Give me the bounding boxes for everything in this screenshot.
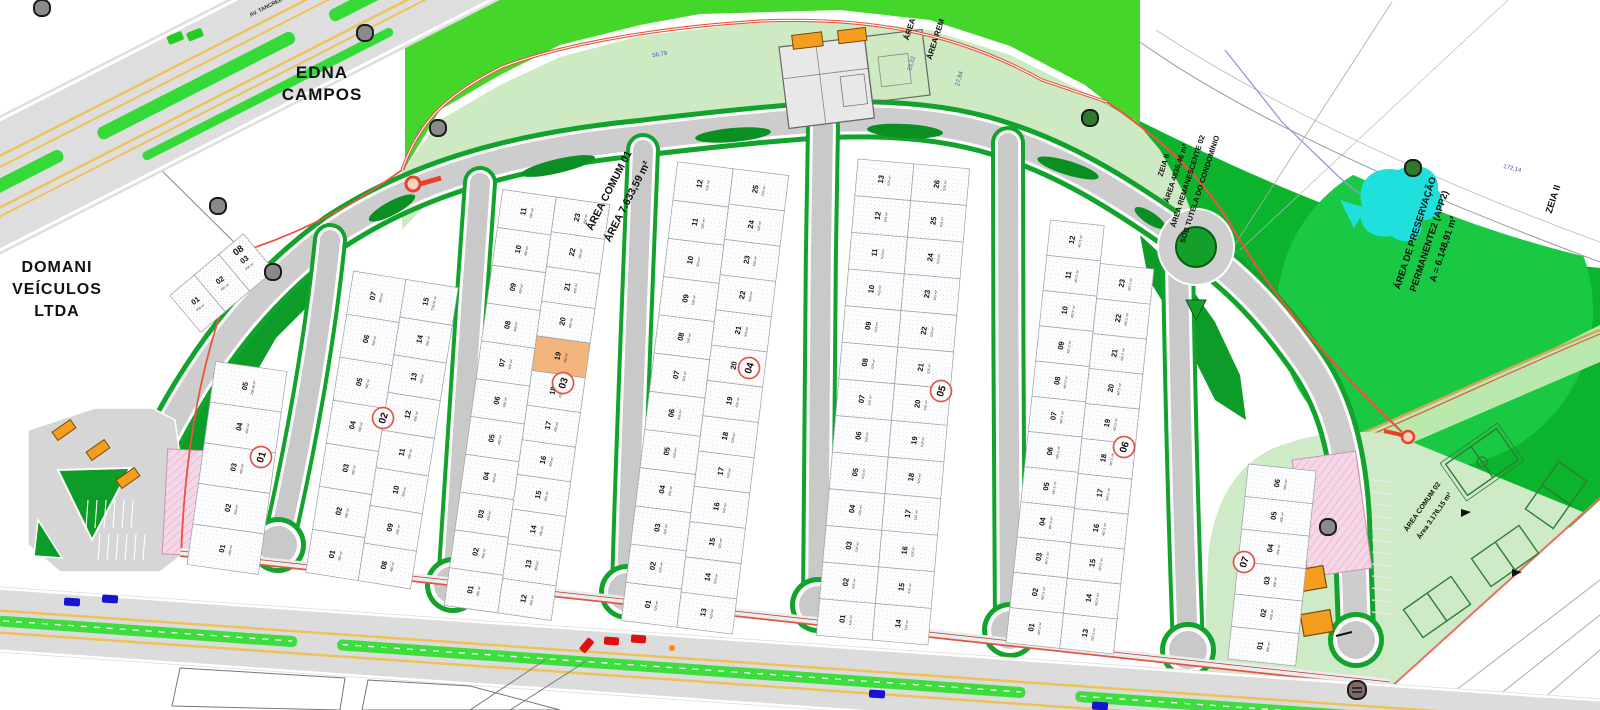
lot-number: 10 — [866, 284, 876, 294]
lot-05-14[interactable]: 14525 m² — [872, 603, 931, 645]
lot-04-23[interactable]: 23525 m² — [720, 239, 780, 281]
lot-number: 17 — [715, 466, 725, 476]
parcel-domani-line3: LTDA — [34, 303, 79, 320]
lot-number: 10 — [685, 255, 695, 265]
lot-02-02[interactable]: 02450 m² — [313, 486, 372, 537]
lot-number: 09 — [1056, 341, 1066, 351]
lot-number: 08 — [860, 358, 870, 368]
lot-number: 13 — [876, 174, 886, 184]
tree-icon — [1319, 518, 1337, 536]
lot-04-14[interactable]: 14525 m² — [681, 557, 741, 599]
lot-number: 07 — [671, 370, 681, 380]
lot-number: 26 — [932, 179, 942, 189]
lot-03-03[interactable]: 03450 m² — [455, 492, 514, 537]
lot-05-26[interactable]: 26525 m² — [911, 164, 970, 206]
lot-number: 01 — [1026, 622, 1036, 632]
tree-icon — [429, 119, 447, 137]
lot-number: 19 — [1102, 418, 1112, 428]
lot-number: 19 — [724, 396, 734, 406]
site-plan-page: AV. TANCREDO NEVES — [0, 0, 1600, 710]
lot-number: 13 — [698, 607, 708, 617]
block-label-03: 03 — [553, 373, 574, 394]
lot-number: 06 — [1045, 446, 1055, 456]
lot-number: 08 — [676, 332, 686, 342]
lot-05-16[interactable]: 16525 m² — [879, 530, 938, 572]
lot-number: 16 — [1091, 523, 1101, 533]
lot-06-08[interactable]: 08487,5 m² — [1032, 361, 1089, 402]
lot-03-01[interactable]: 01450 m² — [444, 568, 503, 613]
lot-03-02[interactable]: 02450 m² — [450, 530, 509, 575]
lot-06-14[interactable]: 14487,5 m² — [1063, 578, 1120, 619]
lot-02-15[interactable]: 15728,04 m² — [400, 279, 458, 325]
lot-05-03[interactable]: 03525 m² — [823, 525, 882, 567]
lot-02-01[interactable]: 01450 m² — [306, 529, 365, 580]
lot-06-10[interactable]: 10487,5 m² — [1039, 290, 1096, 331]
lot-number: 16 — [900, 546, 910, 556]
lot-number: 15 — [896, 582, 906, 592]
lot-04-25[interactable]: 25525 m² — [729, 169, 789, 211]
lot-number: 21 — [733, 325, 743, 335]
tree-icon — [1081, 109, 1099, 127]
block-label-04: 04 — [739, 358, 760, 379]
lot-04-24[interactable]: 24525 m² — [724, 204, 784, 246]
parcel-domani-line2: VEÍCULOS — [12, 279, 102, 298]
parcel-edna-line2: CAMPOS — [282, 85, 363, 104]
lot-number: 06 — [666, 408, 676, 418]
lot-number: 17 — [1095, 488, 1105, 498]
site-plan-map: AV. TANCREDO NEVES — [0, 0, 1600, 710]
lot-05-25[interactable]: 25525 m² — [907, 201, 966, 243]
lot-number: 12 — [873, 211, 883, 221]
lot-04-11[interactable]: 11525 m² — [668, 200, 728, 245]
lot-05-11[interactable]: 11525 m² — [848, 232, 907, 274]
lot-number: 23 — [922, 289, 932, 299]
lot-number: 07 — [857, 394, 867, 404]
parcel-edna-line1: EDNA — [296, 63, 348, 82]
block-label-05: 05 — [931, 381, 952, 402]
lot-06-12[interactable]: 12487,5 m² — [1047, 220, 1104, 261]
lot-number: 09 — [680, 293, 690, 303]
lot-05-19[interactable]: 19525 m² — [888, 420, 947, 462]
lot-number: 07 — [1048, 411, 1058, 421]
lot-05-02[interactable]: 02525 m² — [820, 562, 879, 604]
lot-number: 21 — [916, 362, 926, 372]
lot-06-09[interactable]: 09487,5 m² — [1036, 326, 1093, 367]
lot-04-02[interactable]: 02525 m² — [626, 544, 686, 589]
lot-06-03[interactable]: 03487,5 m² — [1013, 537, 1070, 578]
lot-number: 02 — [647, 561, 657, 571]
lot-05-09[interactable]: 09525 m² — [842, 306, 901, 348]
lot-number: 13 — [1080, 628, 1090, 638]
cone-orange — [669, 645, 675, 651]
lot-06-02[interactable]: 02487,5 m² — [1010, 572, 1067, 613]
tree-icon — [1404, 159, 1422, 177]
lot-03-07[interactable]: 07450 m² — [476, 341, 535, 386]
lot-05-07[interactable]: 07525 m² — [836, 379, 895, 421]
lot-05-10[interactable]: 10525 m² — [845, 269, 904, 311]
lot-06-04[interactable]: 04487,5 m² — [1017, 502, 1074, 543]
lot-03-09[interactable]: 09450 m² — [487, 265, 546, 310]
lot-number: 02 — [1258, 608, 1268, 618]
lot-04-22[interactable]: 22525 m² — [716, 275, 776, 317]
car-red — [604, 636, 620, 645]
lot-05-23[interactable]: 23525 m² — [901, 274, 960, 316]
lot-number: 11 — [690, 217, 700, 227]
lot-number: 25 — [750, 184, 760, 194]
lot-number: 25 — [928, 216, 938, 226]
lot-04-17[interactable]: 17525 m² — [694, 451, 754, 493]
lot-number: 12 — [1067, 235, 1077, 245]
lot-number: 03 — [844, 541, 854, 551]
parcel-domani-line1: DOMANI — [22, 259, 93, 276]
lot-number: 22 — [737, 290, 747, 300]
lot-02-07[interactable]: 07450 m² — [347, 271, 406, 322]
lot-06-21[interactable]: 21487,5 m² — [1089, 333, 1146, 374]
lot-number: 22 — [919, 326, 929, 336]
lot-number: 09 — [863, 321, 873, 331]
car-blue — [869, 689, 886, 698]
tree-icon — [33, 0, 51, 17]
lot-05-05[interactable]: 05525 m² — [829, 452, 888, 494]
lot-05-06[interactable]: 06525 m² — [832, 415, 891, 457]
lot-number: 01 — [1255, 641, 1265, 651]
lot-04-21[interactable]: 21525 m² — [711, 310, 771, 352]
lot-05-01[interactable]: 01525 m² — [816, 599, 875, 641]
lot-06-05[interactable]: 05487,5 m² — [1021, 467, 1078, 508]
lot-04-01[interactable]: 01525 m² — [621, 582, 681, 627]
lot-number: 02 — [1030, 587, 1040, 597]
lot-05-24[interactable]: 24525 m² — [904, 237, 963, 279]
lot-04-10[interactable]: 10525 m² — [663, 238, 723, 283]
lot-number: 03 — [1262, 576, 1272, 586]
lot-06-15[interactable]: 15487,5 m² — [1067, 543, 1124, 584]
club-building-orange — [792, 32, 823, 50]
block-label-02: 02 — [373, 408, 394, 429]
lot-number: 15 — [707, 537, 717, 547]
lot-number: 18 — [720, 431, 730, 441]
lot-04-12[interactable]: 12525 m² — [673, 162, 733, 207]
lot-number: 08 — [1052, 376, 1062, 386]
lot-04-15[interactable]: 15525 m² — [686, 521, 746, 563]
lot-number: 23 — [1117, 278, 1127, 288]
lot-05-22[interactable]: 22525 m² — [898, 310, 957, 352]
lot-number: 22 — [1113, 313, 1123, 323]
lot-number: 03 — [1034, 552, 1044, 562]
lot-03-06[interactable]: 06450 m² — [471, 379, 530, 424]
lot-05-12[interactable]: 12525 m² — [852, 196, 911, 238]
lot-06-11[interactable]: 11487,5 m² — [1043, 255, 1100, 296]
lot-03-10[interactable]: 10450 m² — [492, 227, 551, 272]
lot-number: 18 — [906, 472, 916, 482]
lot-number: 19 — [909, 436, 919, 446]
lot-06-13[interactable]: 13487,5 m² — [1060, 613, 1117, 654]
car-red — [631, 634, 647, 643]
lot-03-08[interactable]: 08450 m² — [481, 303, 540, 348]
lot-number: 18 — [1098, 453, 1108, 463]
lot-03-04[interactable]: 04450 m² — [460, 454, 519, 499]
lot-number: 01 — [837, 614, 847, 624]
lot-07-06[interactable]: 06600 m² — [1245, 464, 1316, 504]
tree-icon — [209, 197, 227, 215]
lot-number: 05 — [850, 467, 860, 477]
lot-number: 02 — [841, 577, 851, 587]
lot-04-18[interactable]: 18525 m² — [699, 416, 759, 458]
lot-number: 20 — [728, 361, 738, 371]
lot-03-11[interactable]: 11450 m² — [497, 190, 556, 235]
lot-06-06[interactable]: 06487,5 m² — [1025, 431, 1082, 472]
lot-number: 17 — [903, 509, 913, 519]
lot-number: 20 — [912, 399, 922, 409]
lot-04-08[interactable]: 08525 m² — [654, 315, 714, 360]
lot-02-05[interactable]: 05450 m² — [333, 357, 392, 408]
block-06[interactable]: 01487,5 m²02487,5 m²03487,5 m²04487,5 m²… — [1006, 220, 1158, 654]
lot-number: 11 — [1063, 270, 1073, 279]
tree-icon — [264, 263, 282, 281]
lot-number: 06 — [1272, 478, 1282, 488]
lot-06-17[interactable]: 17487,5 m² — [1074, 473, 1131, 514]
club-building-orange — [837, 27, 866, 43]
lot-number: 01 — [643, 599, 653, 609]
lot-number: 12 — [694, 179, 704, 189]
lot-number: 03 — [652, 523, 662, 533]
lot-number: 16 — [711, 502, 721, 512]
lot-number: 10 — [1060, 305, 1070, 315]
lot-05-04[interactable]: 04525 m² — [826, 489, 885, 531]
lot-number: 06 — [853, 431, 863, 441]
block-05[interactable]: 01525 m²02525 m²03525 m²04525 m²05525 m²… — [816, 159, 969, 645]
lot-06-07[interactable]: 07487,5 m² — [1028, 396, 1085, 437]
tree-icon — [356, 24, 374, 42]
lot-05-15[interactable]: 15525 m² — [875, 567, 934, 609]
lot-04-03[interactable]: 03525 m² — [631, 506, 691, 551]
lot-04-16[interactable]: 16525 m² — [690, 486, 750, 528]
lot-05-17[interactable]: 17525 m² — [882, 494, 941, 536]
car-blue — [1092, 701, 1109, 710]
lot-04-06[interactable]: 06525 m² — [645, 391, 705, 436]
lot-number: 11 — [869, 248, 879, 257]
lot-04-13[interactable]: 13525 m² — [677, 592, 737, 634]
car-blue — [102, 594, 119, 603]
tree-icon — [1347, 680, 1367, 700]
lot-06-23[interactable]: 23487,5 m² — [1097, 263, 1154, 304]
lot-06-20[interactable]: 20487,5 m² — [1086, 368, 1143, 409]
lot-04-19[interactable]: 19525 m² — [703, 380, 763, 422]
building-orange — [1300, 610, 1333, 637]
lot-05-08[interactable]: 08525 m² — [839, 342, 898, 384]
lot-04-04[interactable]: 04525 m² — [635, 468, 695, 513]
lot-06-22[interactable]: 22487,5 m² — [1093, 298, 1150, 339]
lot-number: 05 — [1041, 482, 1051, 492]
lot-06-01[interactable]: 01487,5 m² — [1006, 607, 1063, 648]
lot-02-06[interactable]: 06450 m² — [340, 314, 399, 365]
lot-number: 20 — [1106, 383, 1116, 393]
block-label-06: 06 — [1114, 437, 1135, 458]
lot-04-09[interactable]: 09525 m² — [659, 277, 719, 322]
lot-number: 15 — [1087, 558, 1097, 568]
block-label-01: 01 — [251, 447, 272, 468]
lot-number: 05 — [1269, 511, 1279, 521]
lot-02-03[interactable]: 03450 m² — [319, 443, 378, 494]
block-label-07: 07 — [1234, 552, 1255, 573]
lot-04-07[interactable]: 07525 m² — [649, 353, 709, 398]
lot-04-05[interactable]: 05525 m² — [640, 429, 700, 474]
lot-number: 21 — [1109, 348, 1119, 358]
lot-03-05[interactable]: 05450 m² — [466, 416, 525, 461]
lot-06-16[interactable]: 16487,5 m² — [1071, 508, 1128, 549]
lot-number: 23 — [741, 255, 751, 265]
lot-number: 05 — [662, 446, 672, 456]
car-blue — [64, 597, 81, 606]
lot-05-13[interactable]: 13525 m² — [855, 159, 914, 201]
lot-05-18[interactable]: 18525 m² — [885, 457, 944, 499]
